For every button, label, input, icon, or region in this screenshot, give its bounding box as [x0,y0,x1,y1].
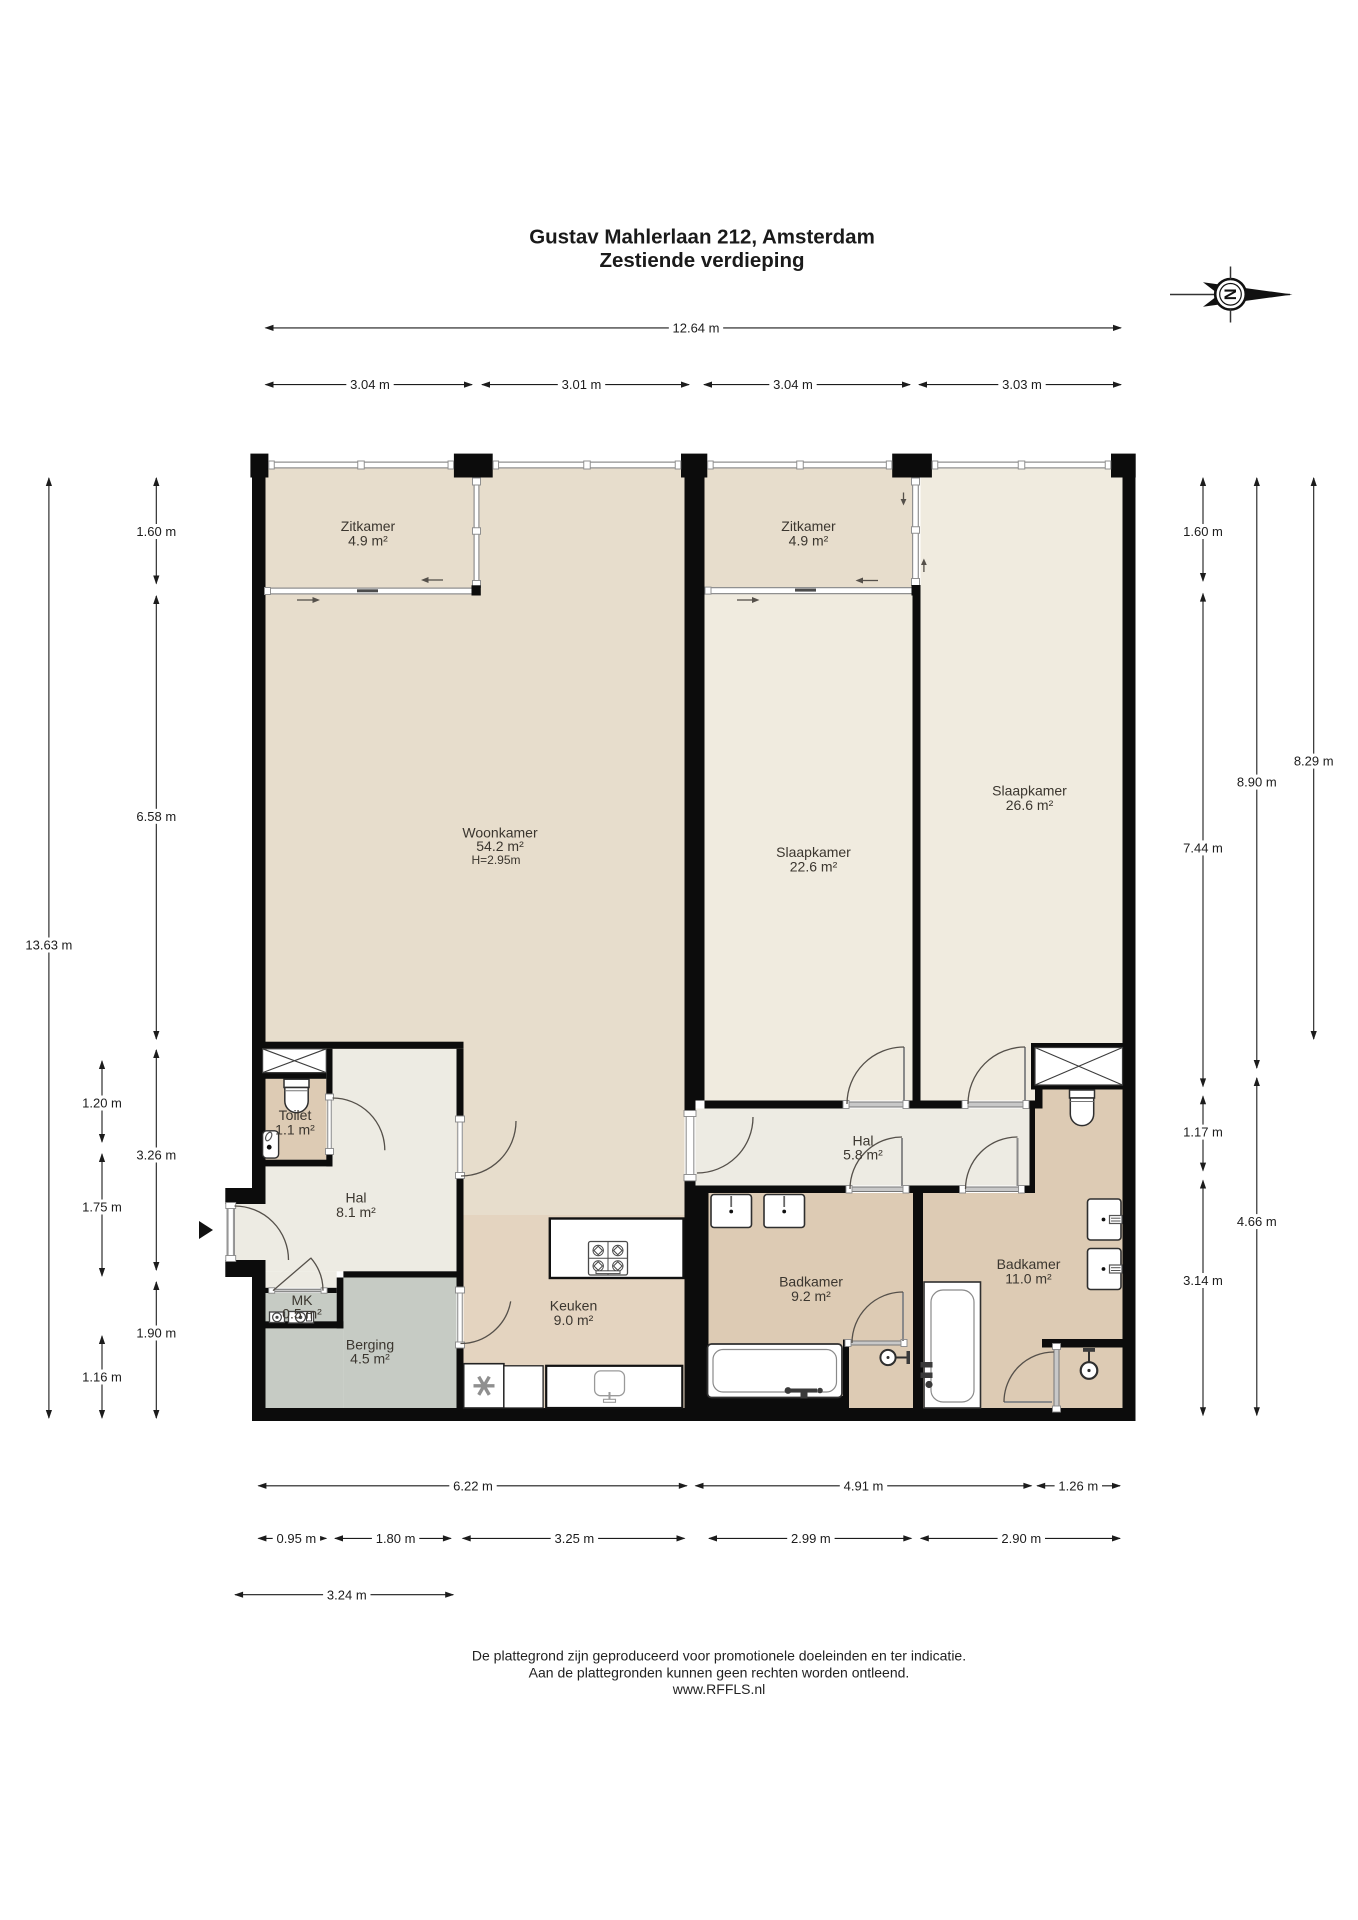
svg-text:5.8 m²: 5.8 m² [843,1147,883,1163]
svg-text:1.1 m²: 1.1 m² [275,1122,315,1138]
svg-text:1.17 m: 1.17 m [1183,1125,1223,1140]
svg-text:13.63 m: 13.63 m [25,938,72,953]
svg-text:4.66 m: 4.66 m [1237,1214,1277,1229]
svg-text:4.91 m: 4.91 m [844,1478,884,1493]
svg-text:54.2 m²: 54.2 m² [476,838,524,854]
svg-text:De plattegrond zijn geproducee: De plattegrond zijn geproduceerd voor pr… [472,1647,966,1663]
svg-text:3.25 m: 3.25 m [555,1531,595,1546]
svg-text:Gustav Mahlerlaan 212, Amsterd: Gustav Mahlerlaan 212, Amsterdam [529,226,875,249]
svg-text:3.01 m: 3.01 m [562,377,602,392]
svg-text:8.1 m²: 8.1 m² [336,1204,376,1220]
svg-text:N: N [1221,288,1239,300]
svg-text:4.9 m²: 4.9 m² [348,533,388,549]
svg-text:4.9 m²: 4.9 m² [789,533,829,549]
svg-text:3.04 m: 3.04 m [773,377,813,392]
svg-text:3.26 m: 3.26 m [136,1148,176,1163]
svg-text:8.90 m: 8.90 m [1237,775,1277,790]
svg-text:12.64 m: 12.64 m [673,321,720,336]
svg-text:1.20 m: 1.20 m [82,1096,122,1111]
svg-text:1.75 m: 1.75 m [82,1200,122,1215]
svg-text:0.95 m: 0.95 m [277,1531,317,1546]
svg-text:1.16 m: 1.16 m [82,1370,122,1385]
svg-text:11.0 m²: 11.0 m² [1005,1271,1052,1287]
svg-text:7.44 m: 7.44 m [1183,841,1223,856]
svg-text:3.04 m: 3.04 m [350,377,390,392]
svg-text:1.80 m: 1.80 m [376,1531,416,1546]
svg-text:3.03 m: 3.03 m [1002,377,1042,392]
svg-text:8.29 m: 8.29 m [1294,754,1334,769]
svg-text:Aan de plattegronden kunnen ge: Aan de plattegronden kunnen geen rechten… [529,1665,910,1681]
svg-text:3.14 m: 3.14 m [1183,1273,1223,1288]
svg-text:1.60 m: 1.60 m [1183,524,1223,539]
svg-text:3.24 m: 3.24 m [327,1587,367,1602]
svg-text:22.6 m²: 22.6 m² [790,859,838,875]
svg-text:1.90 m: 1.90 m [136,1326,176,1341]
svg-text:9.0 m²: 9.0 m² [554,1312,594,1328]
svg-text:www.RFFLS.nl: www.RFFLS.nl [672,1681,766,1697]
svg-text:1.60 m: 1.60 m [136,524,176,539]
svg-text:4.5 m²: 4.5 m² [350,1351,390,1367]
svg-text:6.22 m: 6.22 m [453,1478,493,1493]
svg-text:6.58 m: 6.58 m [136,809,176,824]
svg-text:9.2 m²: 9.2 m² [791,1288,831,1304]
svg-text:0.5 m²: 0.5 m² [282,1306,322,1322]
svg-text:26.6 m²: 26.6 m² [1006,797,1054,813]
svg-text:H=2.95m: H=2.95m [471,853,520,867]
svg-text:Zestiende verdieping: Zestiende verdieping [599,249,804,272]
svg-text:2.90 m: 2.90 m [1001,1531,1041,1546]
svg-text:1.26 m: 1.26 m [1058,1478,1098,1493]
svg-text:2.99 m: 2.99 m [791,1531,831,1546]
